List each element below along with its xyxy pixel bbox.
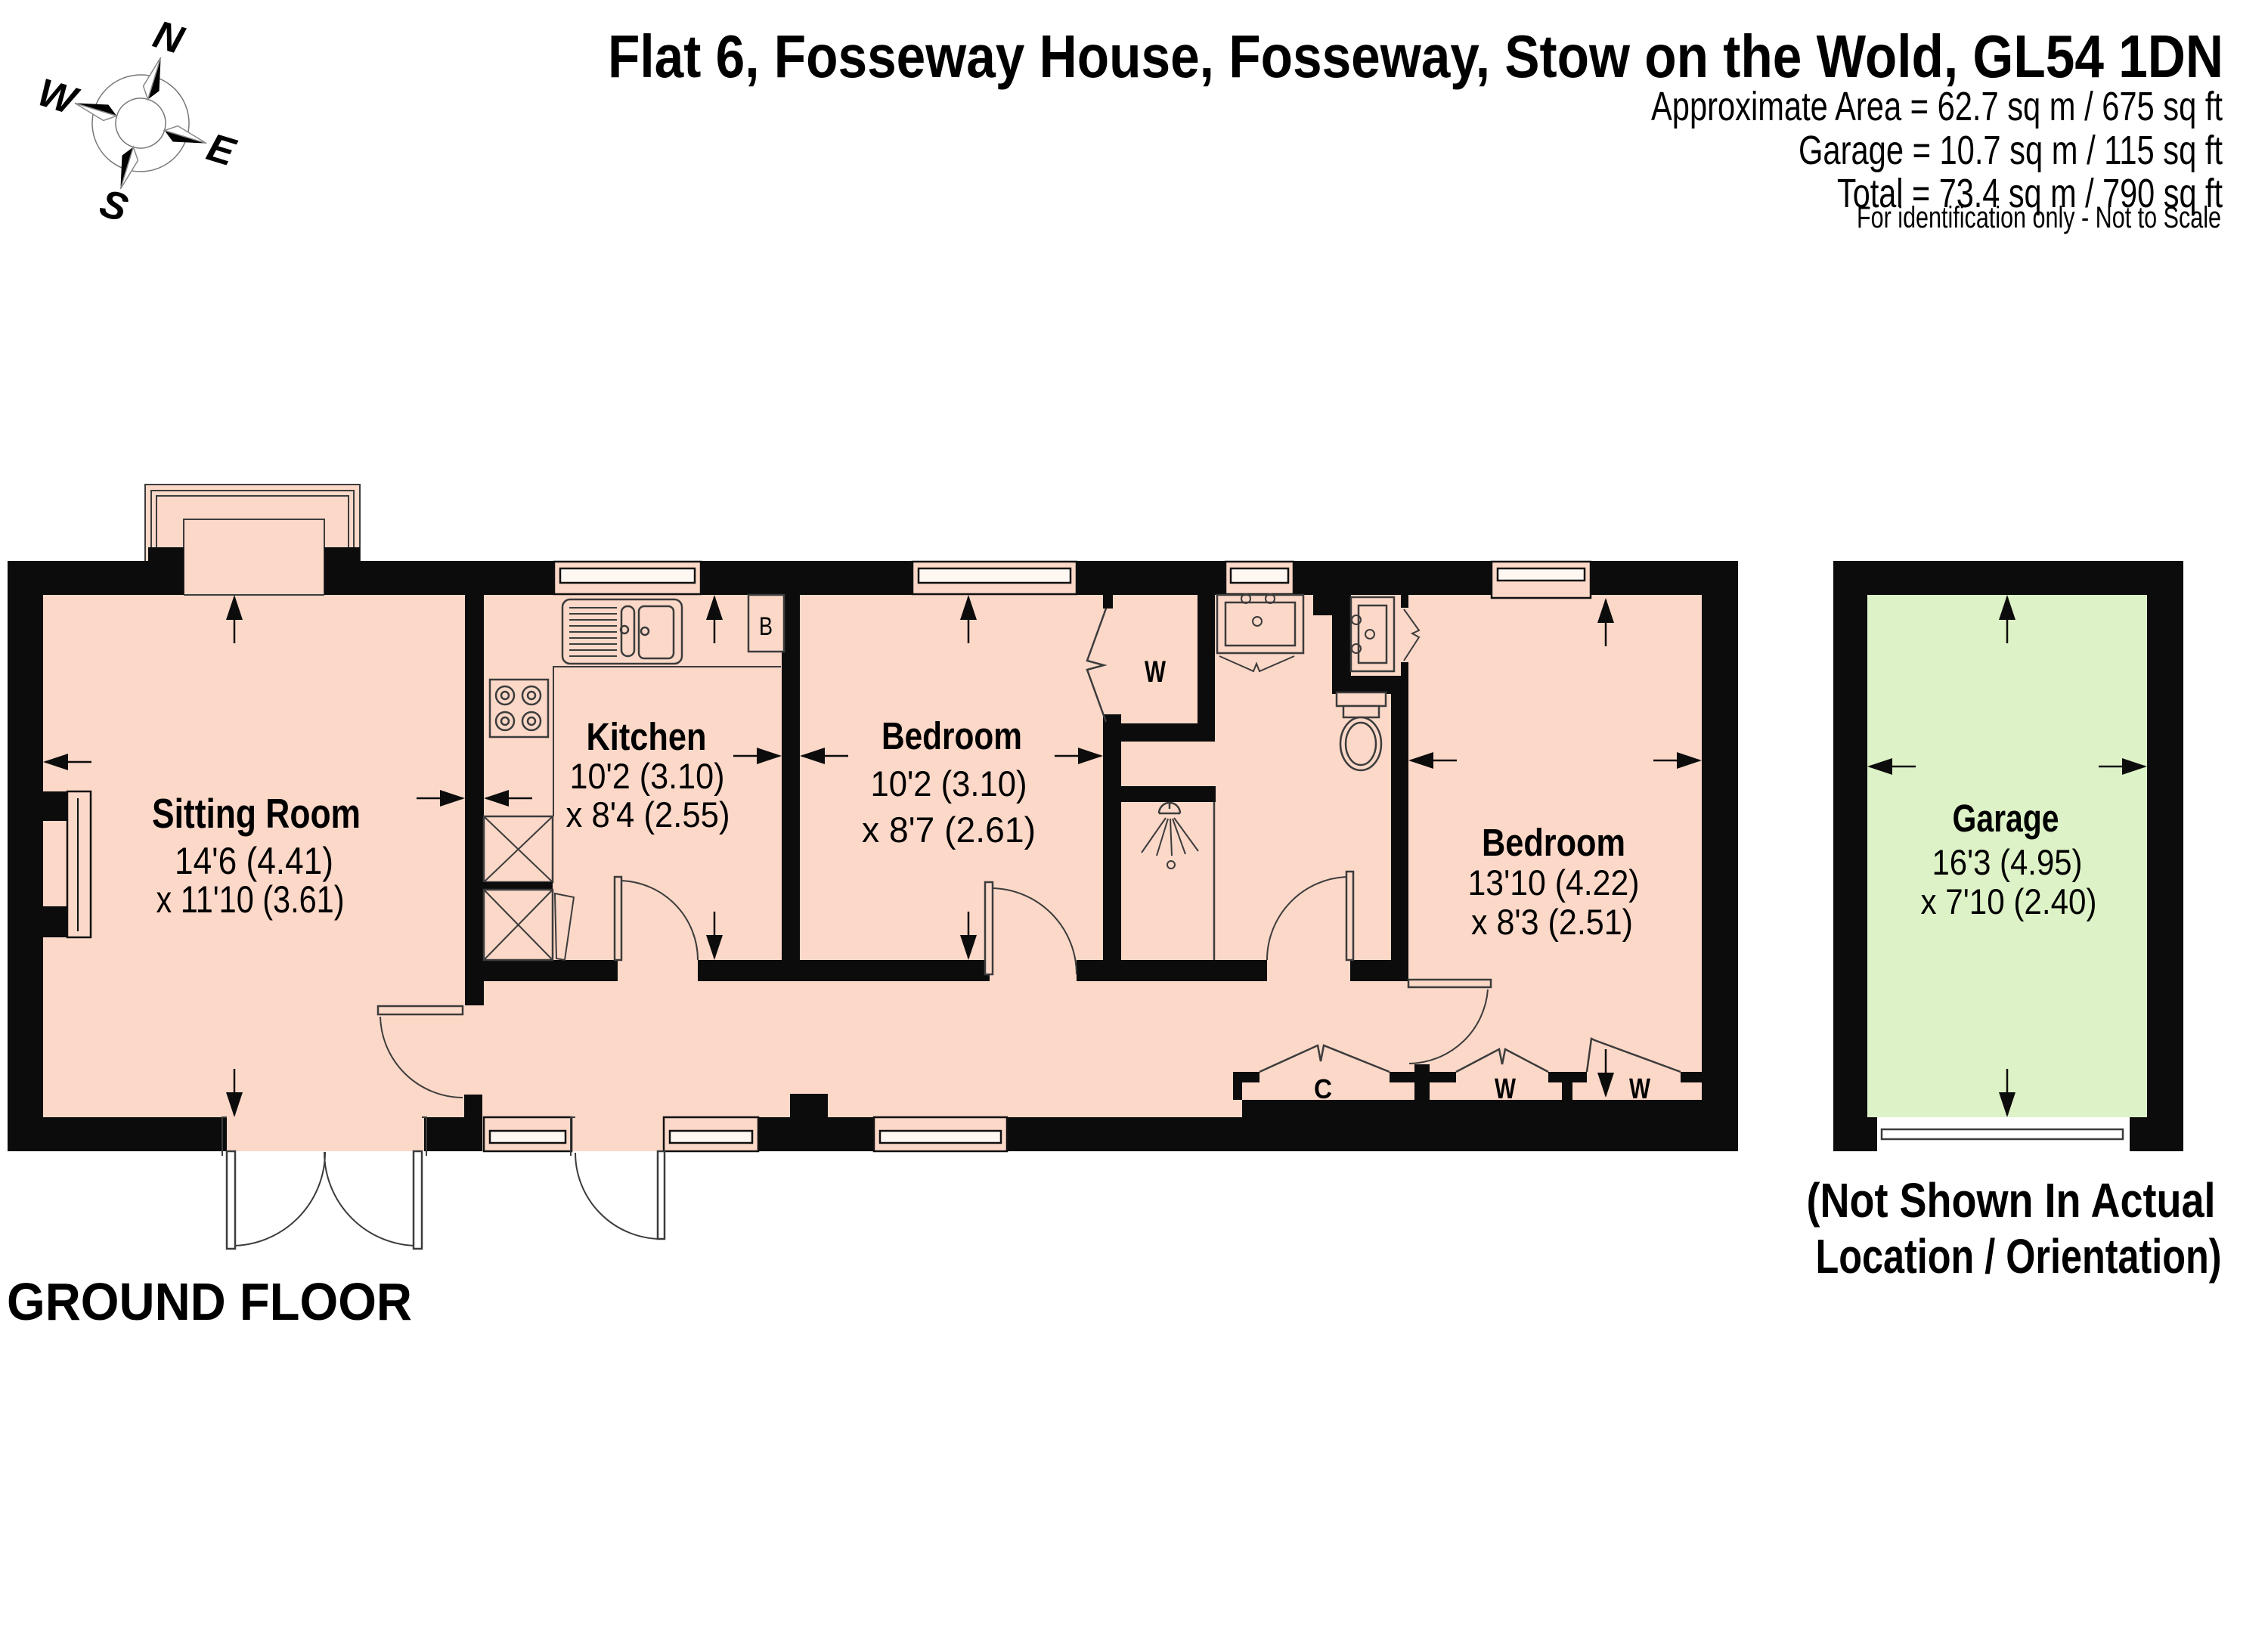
svg-text:W: W — [1629, 1073, 1650, 1105]
svg-text:Garage = 10.7 sq m / 115 sq ft: Garage = 10.7 sq m / 115 sq ft — [1799, 128, 2223, 173]
svg-text:x 8'3 (2.51): x 8'3 (2.51) — [1471, 902, 1633, 942]
svg-text:Location / Orientation): Location / Orientation) — [1816, 1229, 2222, 1284]
svg-text:C: C — [1314, 1073, 1332, 1104]
svg-text:x 11'10 (3.61): x 11'10 (3.61) — [156, 878, 345, 921]
svg-text:10'2 (3.10): 10'2 (3.10) — [570, 756, 725, 796]
svg-text:Garage: Garage — [1953, 797, 2059, 840]
svg-text:Kitchen: Kitchen — [587, 715, 707, 758]
svg-text:16'3 (4.95): 16'3 (4.95) — [1932, 842, 2083, 882]
svg-text:W: W — [1145, 655, 1166, 689]
svg-text:Sitting Room: Sitting Room — [152, 790, 361, 837]
svg-text:GROUND FLOOR: GROUND FLOOR — [7, 1272, 412, 1331]
svg-text:W: W — [1495, 1073, 1516, 1105]
svg-text:Flat 6, Fosseway House, Fossew: Flat 6, Fosseway House, Fosseway, Stow o… — [608, 23, 2223, 90]
svg-text:x 7'10 (2.40): x 7'10 (2.40) — [1921, 881, 2097, 921]
svg-text:B: B — [759, 612, 773, 641]
svg-text:14'6 (4.41): 14'6 (4.41) — [175, 840, 333, 882]
svg-text:For identification only - Not: For identification only - Not to Scale — [1857, 201, 2221, 234]
svg-text:x 8'4 (2.55): x 8'4 (2.55) — [566, 794, 730, 835]
svg-text:Bedroom: Bedroom — [881, 714, 1022, 757]
svg-text:(Not Shown In Actual: (Not Shown In Actual — [1807, 1173, 2216, 1228]
svg-text:13'10 (4.22): 13'10 (4.22) — [1468, 862, 1640, 903]
svg-text:Approximate Area = 62.7 sq m /: Approximate Area = 62.7 sq m / 675 sq ft — [1651, 84, 2223, 129]
svg-text:x 8'7 (2.61): x 8'7 (2.61) — [862, 810, 1036, 850]
svg-text:Bedroom: Bedroom — [1482, 821, 1625, 864]
svg-text:10'2 (3.10): 10'2 (3.10) — [871, 763, 1027, 804]
